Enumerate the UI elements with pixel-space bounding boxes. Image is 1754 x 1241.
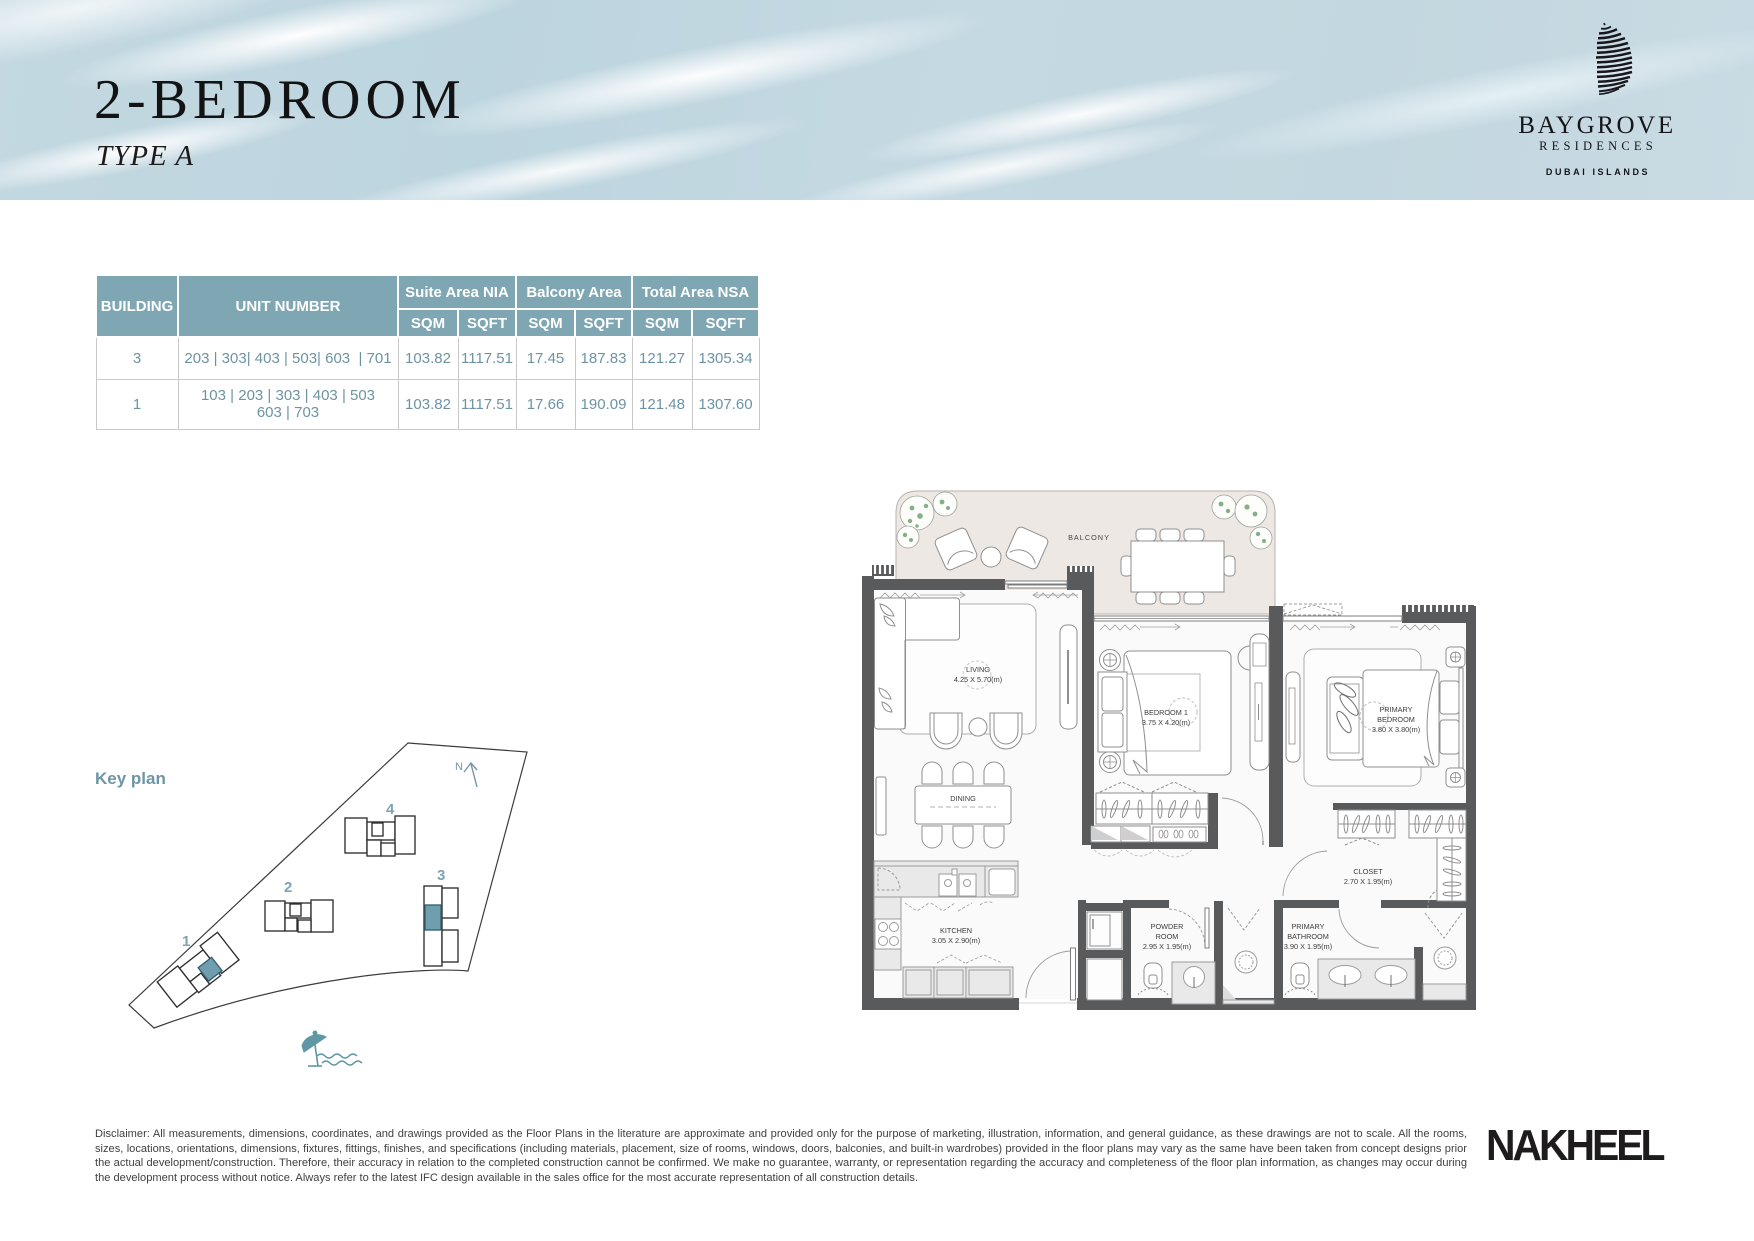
svg-text:3.90 X 1.95(m): 3.90 X 1.95(m)	[1284, 942, 1332, 951]
svg-text:POWDER: POWDER	[1151, 922, 1184, 931]
svg-text:CLOSET: CLOSET	[1353, 867, 1383, 876]
svg-text:BATHROOM: BATHROOM	[1287, 932, 1329, 941]
svg-text:ROOM: ROOM	[1156, 932, 1179, 941]
svg-text:LIVING: LIVING	[966, 665, 990, 674]
svg-text:N: N	[455, 761, 463, 773]
svg-text:4.25 X 5.70(m): 4.25 X 5.70(m)	[954, 675, 1002, 684]
svg-text:BEDROOM: BEDROOM	[1377, 715, 1415, 724]
svg-text:NAKHEEL: NAKHEEL	[1486, 1124, 1665, 1170]
svg-text:BALCONY: BALCONY	[1068, 533, 1110, 542]
svg-text:BAYGROVE: BAYGROVE	[1518, 112, 1675, 139]
svg-text:DINING: DINING	[950, 794, 976, 803]
svg-text:4: 4	[386, 801, 395, 818]
svg-text:3: 3	[437, 867, 445, 884]
svg-text:PRIMARY: PRIMARY	[1291, 922, 1324, 931]
svg-text:2.70 X 1.95(m): 2.70 X 1.95(m)	[1344, 877, 1392, 886]
svg-text:3.80 X 3.80(m): 3.80 X 3.80(m)	[1372, 725, 1420, 734]
svg-text:RESIDENCES: RESIDENCES	[1539, 139, 1657, 153]
svg-text:1: 1	[182, 933, 190, 950]
svg-text:DUBAI ISLANDS: DUBAI ISLANDS	[1546, 167, 1650, 177]
svg-text:2: 2	[284, 879, 292, 896]
svg-text:2.95 X 1.95(m): 2.95 X 1.95(m)	[1143, 942, 1191, 951]
svg-text:Key plan: Key plan	[95, 769, 166, 788]
svg-text:PRIMARY: PRIMARY	[1379, 705, 1412, 714]
svg-text:KITCHEN: KITCHEN	[940, 926, 972, 935]
svg-text:3.05 X 2.90(m): 3.05 X 2.90(m)	[932, 936, 980, 945]
svg-text:3.75 X 4.20(m): 3.75 X 4.20(m)	[1142, 718, 1190, 727]
svg-text:BEDROOM 1: BEDROOM 1	[1144, 708, 1188, 717]
